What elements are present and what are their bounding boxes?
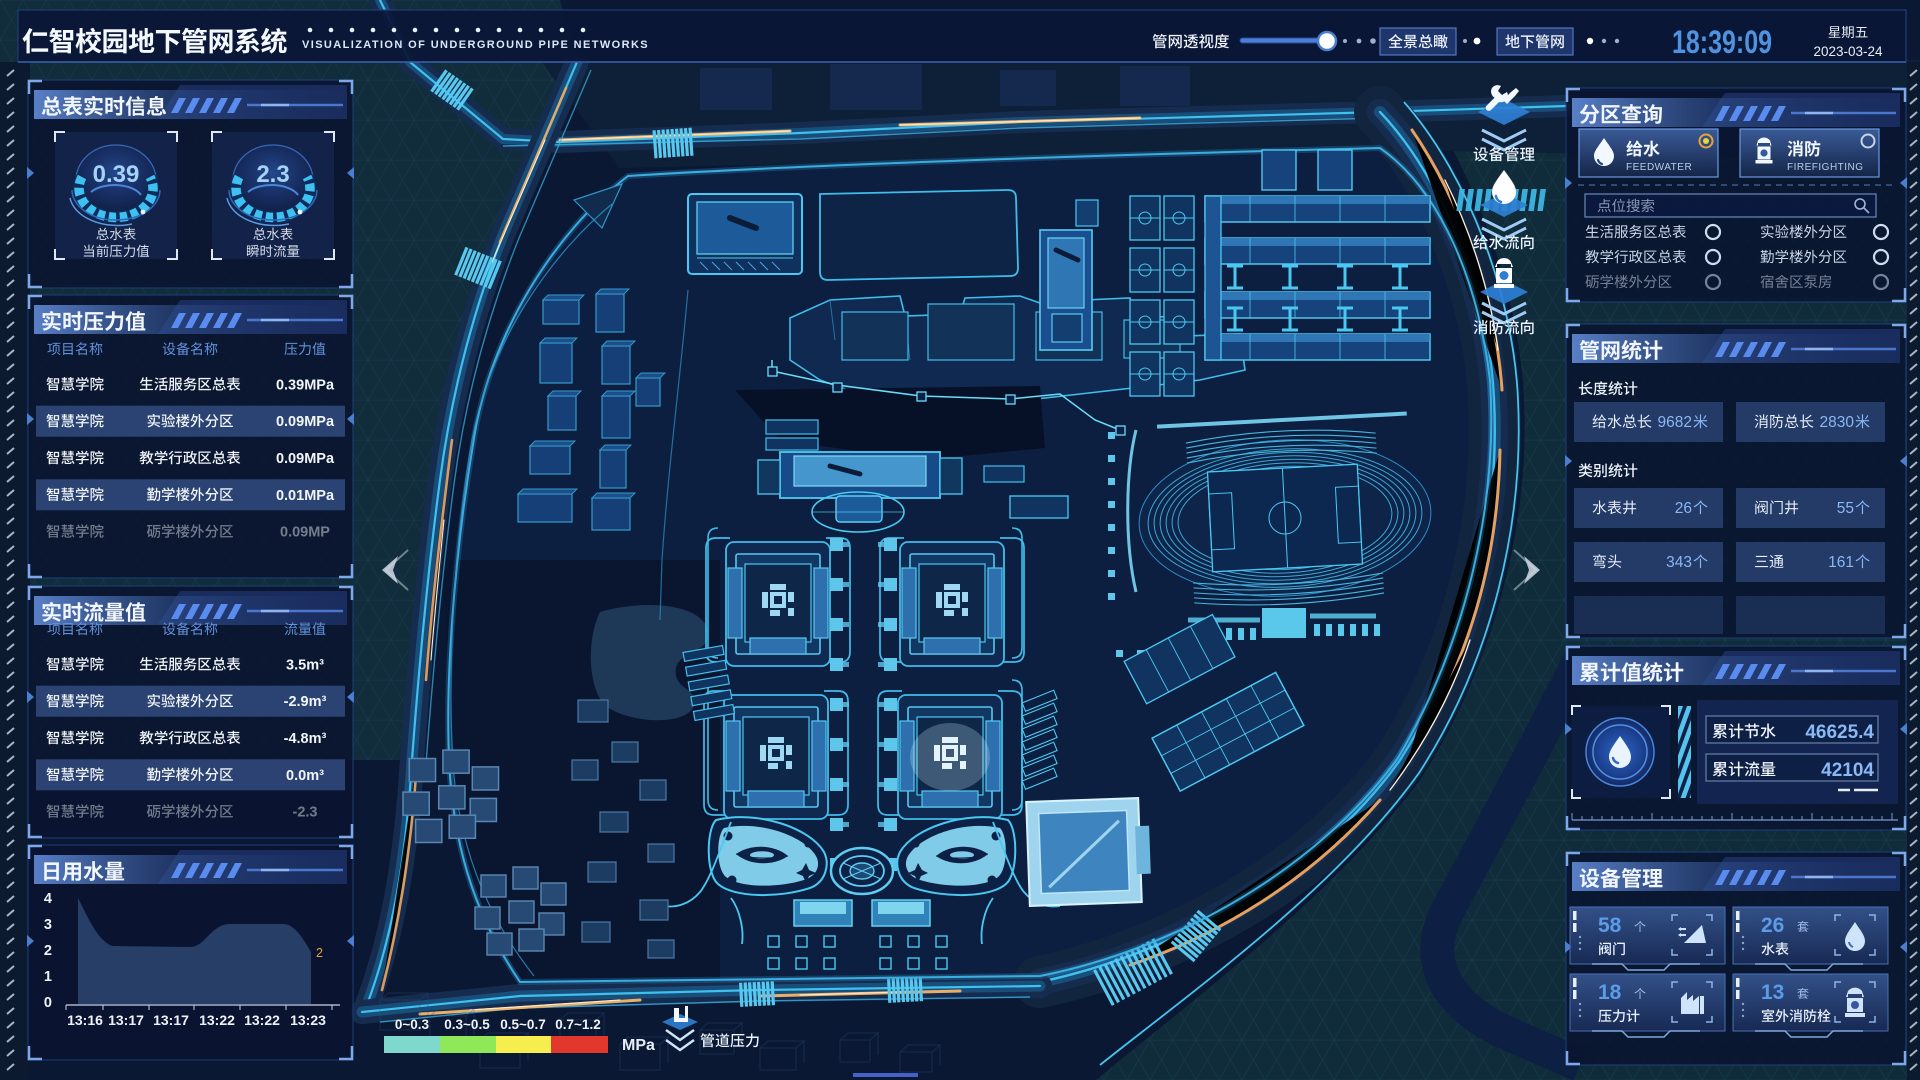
svg-text:-2.9m³: -2.9m³: [284, 694, 327, 710]
svg-text:0.09MPa: 0.09MPa: [276, 414, 335, 430]
svg-text:3.5m³: 3.5m³: [286, 657, 324, 673]
svg-text:0.39: 0.39: [93, 161, 140, 188]
svg-text:0.0m³: 0.0m³: [286, 768, 324, 784]
svg-text:13: 13: [1761, 981, 1784, 1004]
svg-text:18:39:09: 18:39:09: [1672, 24, 1772, 60]
svg-text:13:17: 13:17: [153, 1012, 189, 1028]
svg-text:-4.8m³: -4.8m³: [284, 731, 327, 747]
svg-text:58: 58: [1598, 914, 1622, 937]
svg-text:26: 26: [1675, 500, 1692, 517]
svg-text:0.7~1.2: 0.7~1.2: [555, 1017, 600, 1032]
svg-text:26: 26: [1761, 914, 1784, 937]
svg-text:4: 4: [44, 891, 52, 907]
svg-text:2.3: 2.3: [256, 161, 289, 188]
svg-text:0.39MPa: 0.39MPa: [276, 377, 335, 393]
svg-text:2830: 2830: [1820, 414, 1855, 431]
svg-text:0.01MPa: 0.01MPa: [276, 488, 335, 504]
svg-text:2023-03-24: 2023-03-24: [1813, 44, 1883, 59]
svg-text:0~0.3: 0~0.3: [395, 1017, 430, 1032]
svg-text:13:16: 13:16: [67, 1012, 103, 1028]
svg-text:161: 161: [1828, 554, 1854, 571]
svg-text:343: 343: [1666, 554, 1692, 571]
svg-text:13:22: 13:22: [199, 1012, 235, 1028]
svg-text:0.09MP: 0.09MP: [280, 525, 330, 541]
svg-text:3: 3: [44, 917, 52, 933]
svg-text:0.09MPa: 0.09MPa: [276, 451, 335, 467]
svg-text:46625.4: 46625.4: [1805, 722, 1874, 743]
svg-text:-2.3: -2.3: [293, 805, 318, 821]
svg-text:FEEDWATER: FEEDWATER: [1626, 162, 1692, 173]
svg-text:2: 2: [44, 943, 52, 959]
svg-text:0.3~0.5: 0.3~0.5: [444, 1017, 490, 1032]
svg-text:VISUALIZATION OF UNDERGROUND P: VISUALIZATION OF UNDERGROUND PIPE NETWOR…: [302, 39, 649, 51]
svg-text:42104: 42104: [1821, 760, 1874, 781]
svg-text:18: 18: [1598, 981, 1622, 1004]
svg-text:9682: 9682: [1658, 414, 1692, 431]
svg-text:13:17: 13:17: [108, 1012, 144, 1028]
svg-text:55: 55: [1837, 500, 1854, 517]
svg-text:MPa: MPa: [622, 1037, 655, 1054]
svg-text:0.5~0.7: 0.5~0.7: [500, 1017, 545, 1032]
svg-text:13:22: 13:22: [244, 1012, 280, 1028]
svg-text:FIREFIGHTING: FIREFIGHTING: [1787, 162, 1864, 173]
svg-text:2: 2: [316, 946, 323, 960]
svg-text:0: 0: [44, 995, 52, 1011]
svg-text:13:23: 13:23: [290, 1012, 326, 1028]
svg-text:1: 1: [44, 969, 52, 985]
